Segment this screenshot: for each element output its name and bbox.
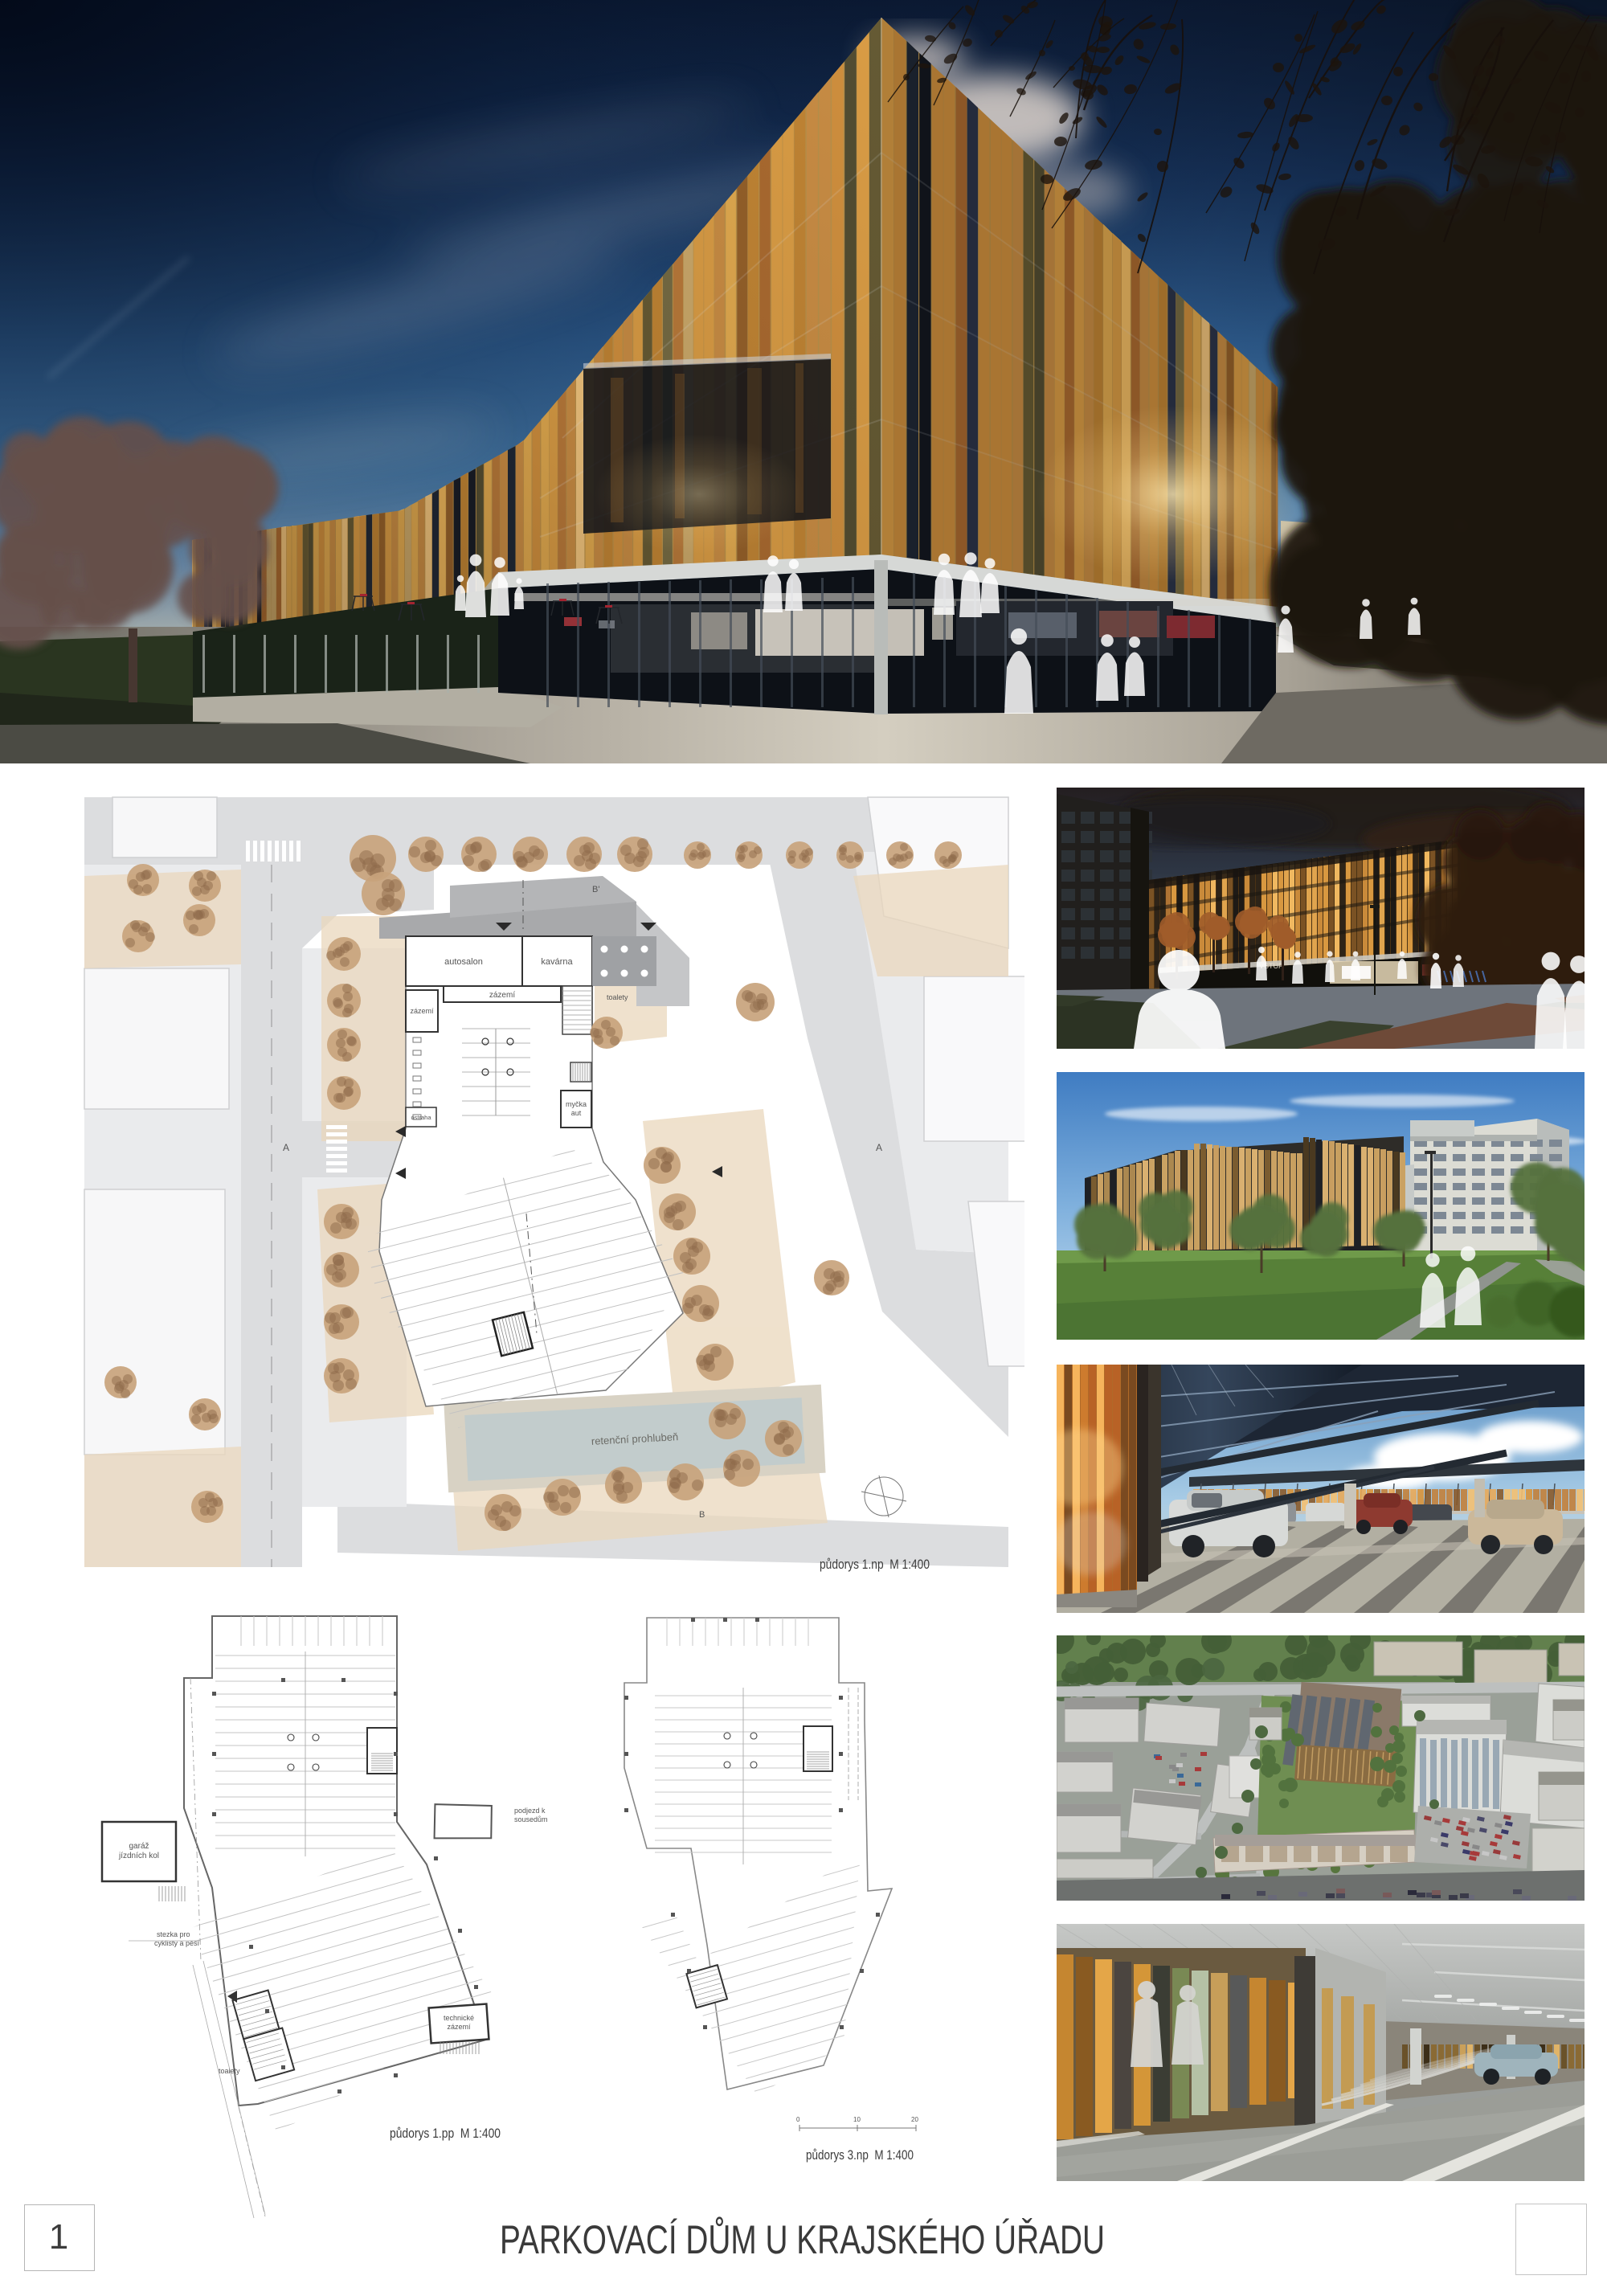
svg-text:podjezd k: podjezd k — [514, 1807, 546, 1815]
svg-text:sousedům: sousedům — [514, 1815, 548, 1823]
svg-text:aut: aut — [571, 1109, 582, 1117]
svg-text:B': B' — [592, 885, 599, 894]
svg-text:toalety: toalety — [607, 993, 628, 1001]
svg-text:garáž: garáž — [129, 1842, 149, 1851]
svg-text:zázemí: zázemí — [447, 2023, 471, 2031]
svg-text:půdorys 1.np M 1:400: půdorys 1.np M 1:400 — [820, 1557, 930, 1572]
svg-text:20: 20 — [911, 2116, 918, 2123]
svg-text:technické: technické — [444, 2014, 474, 2022]
svg-text:kavárna: kavárna — [541, 957, 573, 967]
svg-text:0: 0 — [796, 2116, 800, 2123]
svg-text:zázemí: zázemí — [489, 991, 515, 1000]
svg-text:10: 10 — [853, 2116, 861, 2123]
svg-text:stezka pro: stezka pro — [157, 1930, 190, 1938]
svg-text:zázemí: zázemí — [410, 1007, 434, 1015]
svg-text:jízdních kol: jízdních kol — [118, 1852, 159, 1860]
svg-text:A: A — [283, 1142, 289, 1153]
svg-text:PARKOVACÍ DŮM U KRAJSKÉHO ÚŘAD: PARKOVACÍ DŮM U KRAJSKÉHO ÚŘADU — [500, 2216, 1105, 2262]
svg-text:myčka: myčka — [566, 1100, 587, 1108]
svg-text:půdorys 3.np M 1:400: půdorys 3.np M 1:400 — [806, 2147, 914, 2163]
svg-text:půdorys 1.pp M 1:400: půdorys 1.pp M 1:400 — [390, 2126, 501, 2141]
svg-text:A: A — [876, 1142, 882, 1153]
svg-text:B: B — [699, 1510, 705, 1520]
svg-text:autosalon: autosalon — [444, 957, 483, 967]
svg-text:cyklisty a pěší: cyklisty a pěší — [154, 1939, 200, 1947]
